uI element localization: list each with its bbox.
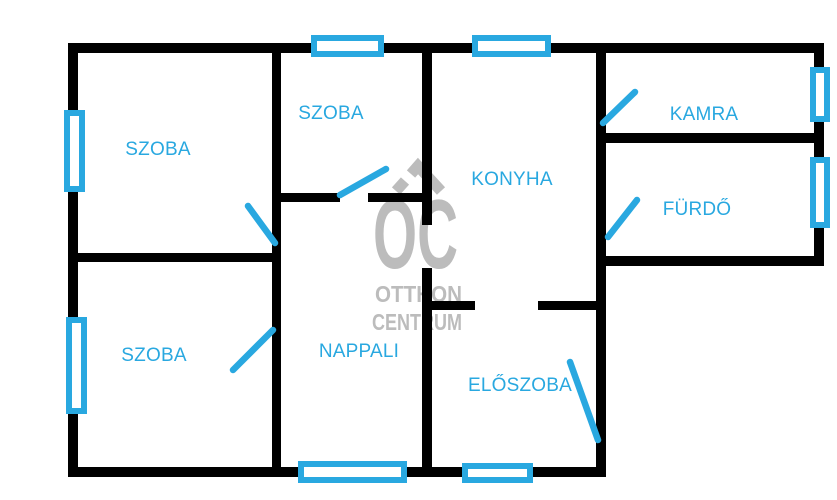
room-label-furdo: FÜRDŐ <box>663 199 732 221</box>
room-label-konyha: KONYHA <box>471 169 552 191</box>
room-label-kamra: KAMRA <box>670 104 739 126</box>
labels-layer: SZOBASZOBAKONYHAKAMRAFÜRDŐSZOBANAPPALIEL… <box>0 0 837 500</box>
floorplan-canvas: OC OTTHON CENTRUM SZOBASZOBAKONYHAKAMRAF… <box>0 0 837 500</box>
room-label-szoba-middle: SZOBA <box>298 103 363 125</box>
room-label-szoba-bottom-left: SZOBA <box>121 345 186 367</box>
room-label-szoba-top-left: SZOBA <box>125 139 190 161</box>
room-label-nappali: NAPPALI <box>319 341 399 363</box>
room-label-eloszoba: ELŐSZOBA <box>468 375 572 397</box>
